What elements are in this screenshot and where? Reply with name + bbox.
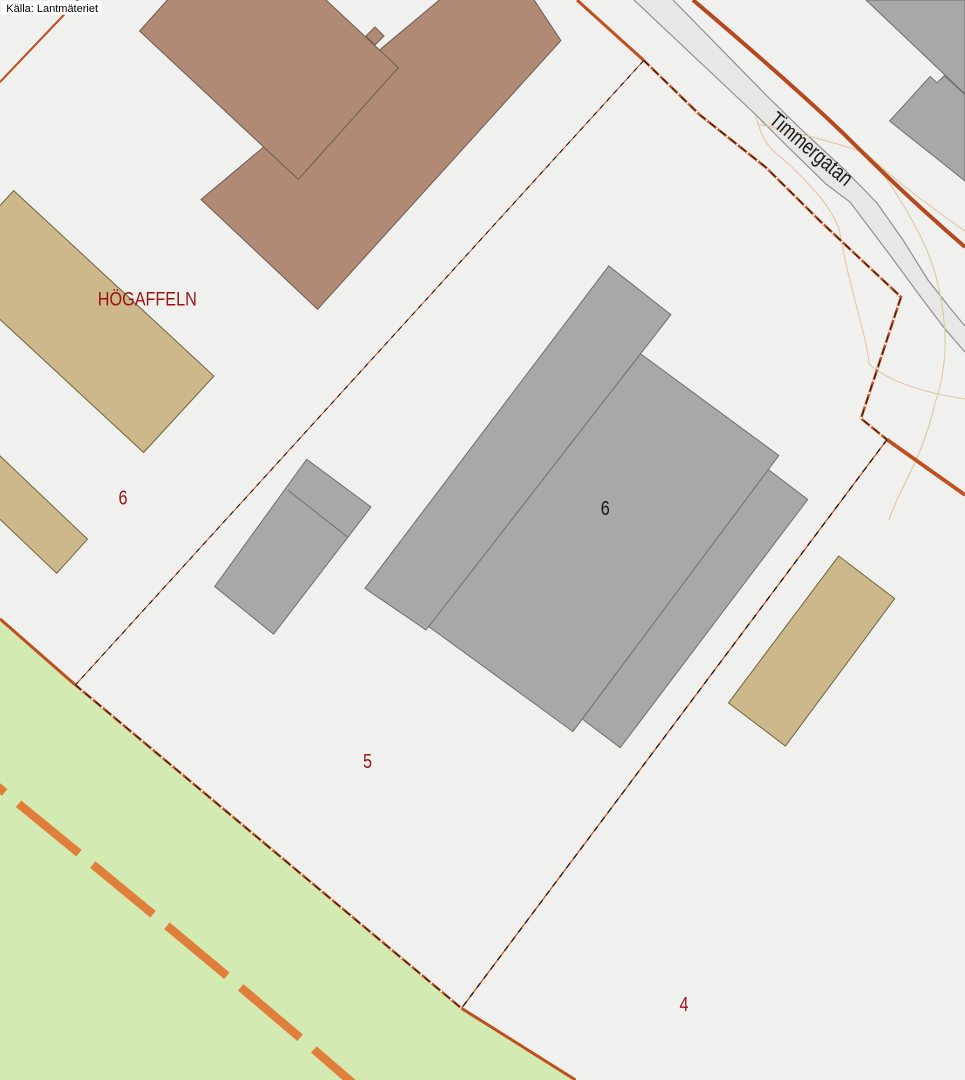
svg-text:5: 5 <box>363 751 372 773</box>
svg-text:6: 6 <box>601 498 610 520</box>
svg-text:Källa: Lantmäteriet: Källa: Lantmäteriet <box>6 3 98 15</box>
svg-text:4: 4 <box>680 994 689 1016</box>
svg-text:6: 6 <box>119 488 128 510</box>
svg-text:HÖGAFFELN: HÖGAFFELN <box>98 290 197 311</box>
